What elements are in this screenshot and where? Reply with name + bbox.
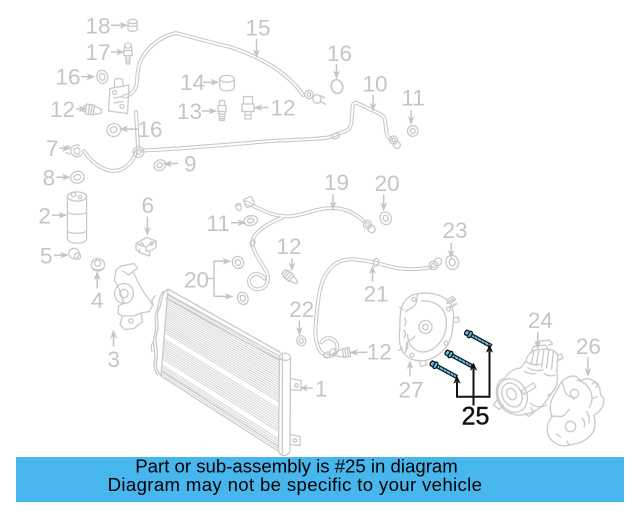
svg-text:16: 16 — [327, 41, 352, 66]
svg-text:12: 12 — [270, 95, 295, 120]
svg-text:12: 12 — [50, 97, 75, 122]
svg-text:8: 8 — [43, 165, 56, 190]
svg-text:Diagram may not be specific to: Diagram may not be specific to your vehi… — [108, 474, 483, 495]
svg-text:17: 17 — [85, 40, 110, 65]
svg-text:4: 4 — [91, 288, 104, 313]
svg-text:7: 7 — [46, 136, 59, 161]
svg-text:15: 15 — [245, 16, 270, 41]
svg-text:26: 26 — [576, 334, 601, 359]
svg-text:1: 1 — [315, 377, 328, 402]
svg-text:20: 20 — [375, 171, 400, 196]
svg-text:16: 16 — [55, 65, 80, 90]
svg-text:22: 22 — [289, 297, 314, 322]
svg-text:5: 5 — [40, 244, 53, 269]
svg-text:3: 3 — [108, 347, 121, 372]
svg-text:9: 9 — [184, 152, 197, 177]
svg-text:12: 12 — [367, 339, 392, 364]
svg-text:16: 16 — [137, 117, 162, 142]
svg-text:23: 23 — [442, 218, 467, 243]
svg-text:12: 12 — [276, 234, 301, 259]
svg-text:27: 27 — [398, 377, 423, 402]
svg-text:25: 25 — [462, 403, 490, 431]
svg-text:24: 24 — [528, 308, 553, 333]
svg-text:2: 2 — [38, 203, 51, 228]
svg-text:20: 20 — [184, 268, 209, 293]
svg-text:11: 11 — [207, 211, 230, 236]
svg-text:14: 14 — [180, 70, 205, 95]
svg-text:13: 13 — [177, 99, 202, 124]
svg-text:11: 11 — [401, 86, 424, 111]
svg-text:18: 18 — [85, 13, 110, 38]
svg-text:21: 21 — [364, 282, 389, 307]
svg-text:6: 6 — [141, 193, 154, 218]
svg-text:10: 10 — [362, 72, 387, 97]
svg-text:19: 19 — [324, 170, 349, 195]
